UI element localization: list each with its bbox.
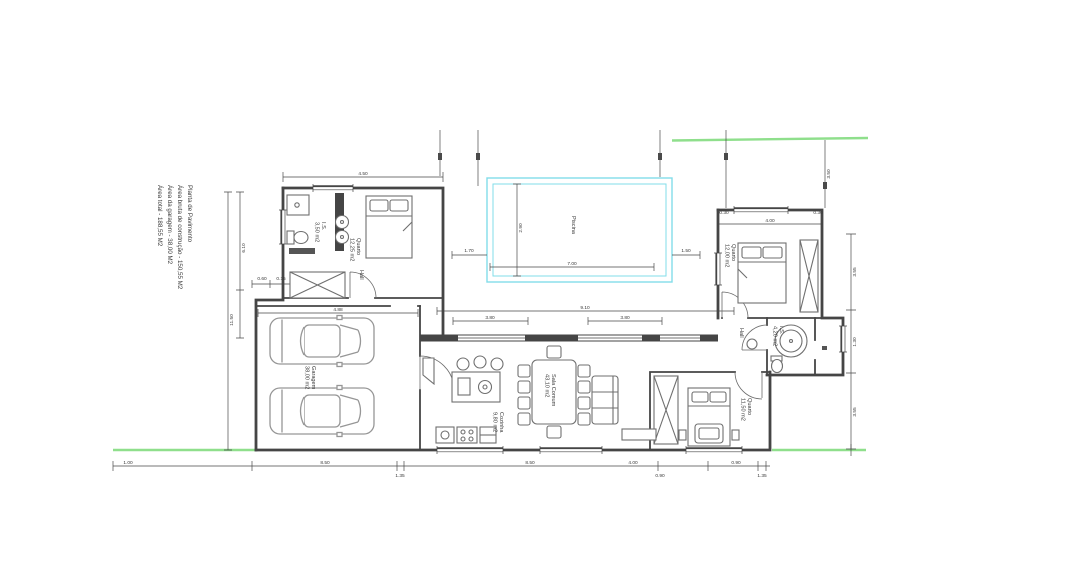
window (313, 184, 353, 192)
room-label: Hall (358, 270, 364, 280)
boundary-line-top (672, 138, 868, 141)
legend-title: Planta de Pavimento (186, 185, 193, 243)
dimension-label: 3.55 (852, 407, 858, 417)
window (839, 326, 847, 352)
dimension-label: 0.90 (731, 460, 741, 466)
room-label: 11,50 m2 (740, 398, 746, 421)
floor-plan-drawing: Planta de PavimentoÁrea bruta de constru… (0, 0, 1080, 566)
tv-stand (622, 429, 656, 440)
door-bedroom-bottom (735, 372, 762, 399)
stool (457, 358, 469, 370)
pool-outer-edge (487, 178, 672, 282)
room-label: Piscina (570, 216, 576, 235)
room-label: Quarto (730, 244, 736, 261)
dimension-label: 3.50 (826, 169, 832, 179)
room-label: I.S. (320, 222, 326, 231)
room-label: Cozinha (498, 412, 504, 433)
dimension-label: 11.50 (229, 314, 235, 326)
kitchen-counter-appliances (436, 427, 496, 443)
garage-cars (270, 316, 374, 437)
dimension-label: 9.10 (580, 305, 590, 311)
corner-cabinet (423, 358, 434, 384)
room-label: 12,25 m2 (349, 238, 355, 261)
dimension-label: 8.50 (525, 460, 535, 466)
bed (738, 243, 786, 303)
window (734, 206, 788, 214)
kitchen (423, 356, 503, 443)
room-label: 3,50 m2 (314, 222, 320, 242)
dimension-label: 1.35 (757, 473, 767, 479)
closet (290, 272, 345, 298)
room-label: Quarto (746, 398, 752, 415)
window (279, 210, 287, 244)
window-wall-terrace (420, 335, 718, 341)
storage-marker (822, 346, 827, 350)
dimension-label: 4.00 (628, 460, 638, 466)
sofa (592, 376, 618, 424)
dimension-label: 8.50 (320, 460, 330, 466)
dimension-label: 3.80 (620, 315, 630, 321)
room-label: Sala Comum (550, 374, 556, 407)
stool (474, 356, 486, 368)
car (270, 386, 374, 437)
closet (800, 240, 818, 312)
dimension-label: 0.60 (257, 276, 267, 282)
window (437, 446, 503, 454)
legend-area: Área da garagem - 38,00 M2 (166, 185, 173, 265)
window (686, 446, 742, 454)
dimension-label: 4.00 (765, 218, 775, 224)
dimension-label: 1.35 (395, 473, 405, 479)
bed (366, 196, 412, 258)
dimension-label: 0.30 (813, 210, 823, 216)
legend-area: Área total - 188,55 M2 (156, 185, 163, 247)
living-room-furniture (592, 376, 656, 440)
dimension-label: 1.50 (681, 248, 691, 254)
window (714, 253, 722, 285)
closet (654, 376, 678, 444)
toilet (294, 232, 308, 244)
toilet-tank (287, 231, 294, 244)
washbasin (747, 339, 757, 349)
bed (679, 388, 739, 446)
dimension-label: 3.55 (852, 267, 858, 277)
dimension-label: 6.10 (241, 243, 247, 253)
dimension-label: 0.30 (719, 210, 729, 216)
room-label: 4,20 m2 (772, 326, 778, 346)
room-label: Hall (738, 328, 744, 338)
stove (457, 427, 477, 443)
dimension-label: 3.80 (485, 315, 495, 321)
pool (487, 178, 672, 282)
room-label: I.S. (778, 326, 784, 335)
toilet (772, 360, 783, 373)
room-label: 43,10 m2 (544, 374, 550, 397)
dimension-label: 4.88 (333, 307, 343, 313)
dimension-label: 4.50 (358, 171, 368, 177)
dimension-label: 0.15 (276, 276, 286, 282)
dimension-label: 0.90 (655, 473, 665, 479)
room-label: 9,80 m2 (492, 412, 498, 432)
legend-area: Área bruta de construção - 150,55 M2 (176, 185, 183, 290)
room-label: 12,00 m2 (724, 244, 730, 267)
dimension-label: 7.00 (567, 261, 577, 267)
vanity (289, 248, 315, 254)
dimension-label: 2.90 (518, 223, 524, 233)
window (540, 446, 602, 454)
car (270, 316, 374, 367)
stool (491, 358, 503, 370)
room-label: 38,00 m2 (304, 366, 310, 389)
floor-plan-canvas: Planta de PavimentoÁrea bruta de constru… (0, 0, 1080, 566)
room-label: Garagem (310, 366, 316, 390)
room-label: Quarto (355, 238, 361, 255)
dimension-label: 1.00 (123, 460, 133, 466)
dimension-label: 1.70 (464, 248, 474, 254)
legend-block: Planta de PavimentoÁrea bruta de constru… (156, 185, 193, 290)
dimension-label: 1.30 (852, 337, 858, 347)
